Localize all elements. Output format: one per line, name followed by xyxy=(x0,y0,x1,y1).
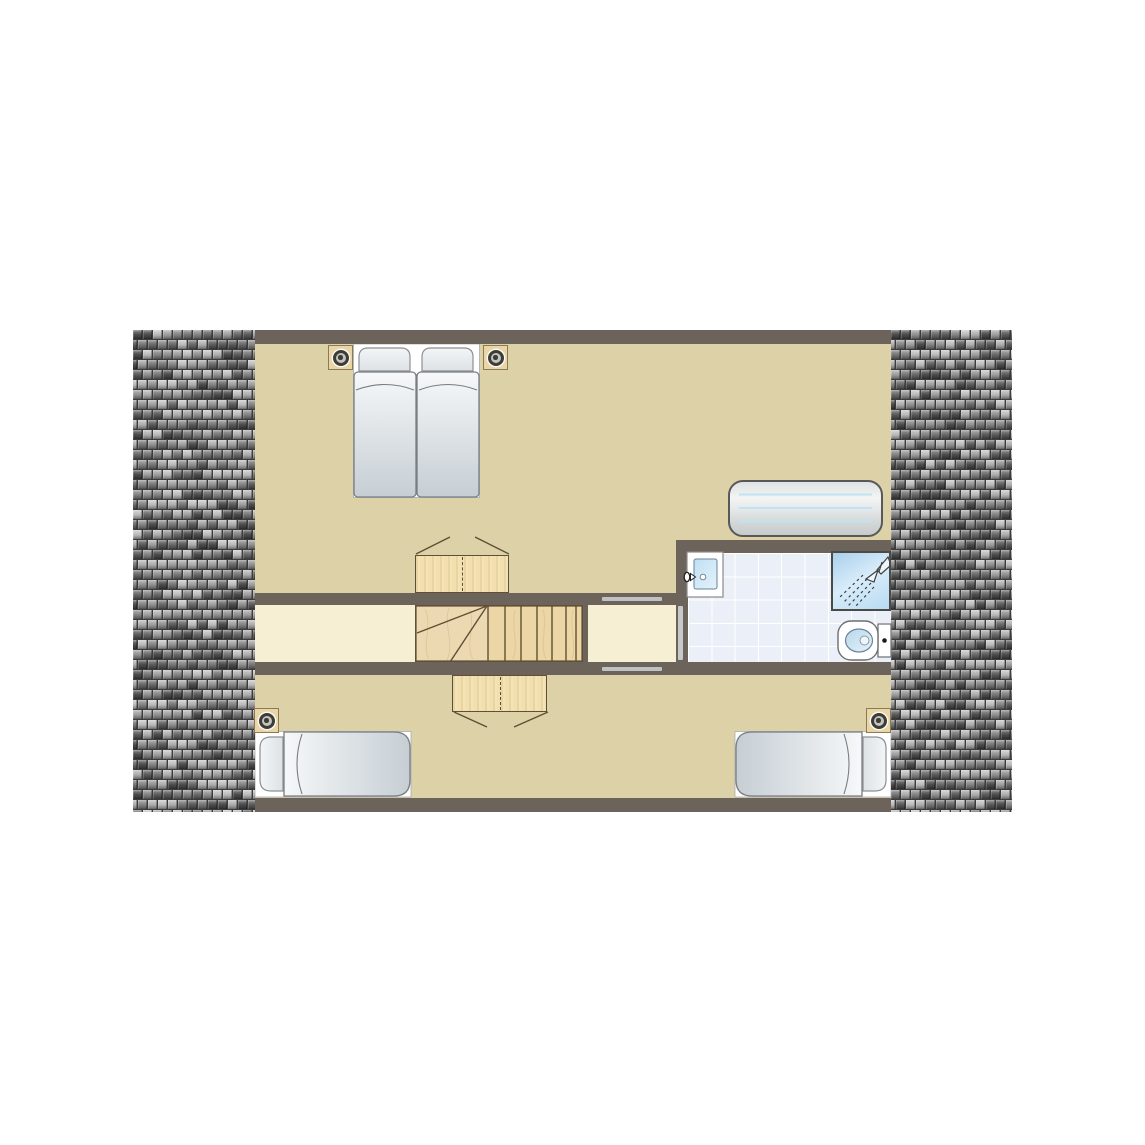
shingle-row xyxy=(133,580,255,589)
roof-shingles-right xyxy=(891,330,1012,812)
shingle-row xyxy=(133,430,255,439)
shingle-row xyxy=(891,740,1012,749)
shingle-row xyxy=(891,460,1012,469)
shingle-row xyxy=(133,810,255,812)
shingle-row xyxy=(133,720,255,729)
shingle-row xyxy=(891,570,1012,579)
bed-double-twin xyxy=(353,344,480,498)
radiator xyxy=(728,480,883,537)
shingle-row xyxy=(133,480,255,489)
wardrobe-top xyxy=(415,555,509,593)
shingle-row xyxy=(133,710,255,719)
shingle-row xyxy=(891,410,1012,419)
shingle-row xyxy=(891,660,1012,669)
shingle-row xyxy=(891,710,1012,719)
shingle-row xyxy=(891,670,1012,679)
shingle-row xyxy=(891,790,1012,799)
shingle-row xyxy=(133,470,255,479)
nightstand-top-right xyxy=(483,345,508,370)
shingle-row xyxy=(133,610,255,619)
shingle-row xyxy=(133,750,255,759)
shingle-row xyxy=(891,690,1012,699)
shingle-row xyxy=(891,500,1012,509)
shingle-row xyxy=(133,440,255,449)
toilet xyxy=(836,618,893,663)
shingle-row xyxy=(133,660,255,669)
nightstand-top-left xyxy=(328,345,353,370)
bathroom-door xyxy=(678,606,683,660)
shingle-row xyxy=(891,510,1012,519)
shingle-row xyxy=(891,590,1012,599)
hallway-wall-lower xyxy=(255,662,891,675)
shingle-row xyxy=(133,420,255,429)
shingle-row xyxy=(133,600,255,609)
lamp-icon xyxy=(488,350,504,366)
shingle-row xyxy=(891,730,1012,739)
nightstand-bottom-left xyxy=(254,708,279,733)
shingle-row xyxy=(133,630,255,639)
lamp-icon xyxy=(259,713,275,729)
shingle-row xyxy=(891,520,1012,529)
shingle-row xyxy=(133,400,255,409)
shingle-row xyxy=(891,530,1012,539)
shingle-row xyxy=(891,400,1012,409)
single-bed-right xyxy=(734,730,891,798)
shingle-row xyxy=(133,780,255,789)
doorway-threshold-top-bedroom xyxy=(602,597,662,601)
hallway-landing-floor xyxy=(588,605,676,662)
shingle-row xyxy=(133,530,255,539)
shingle-row xyxy=(133,500,255,509)
mattress xyxy=(284,732,410,796)
shingle-row xyxy=(891,360,1012,369)
wardrobe-top-open-doors xyxy=(412,534,512,555)
shingle-row xyxy=(133,450,255,459)
shingle-row xyxy=(133,690,255,699)
flush-button-icon xyxy=(882,638,887,643)
shingle-row xyxy=(891,700,1012,709)
shingle-row xyxy=(133,410,255,419)
shingle-row xyxy=(133,760,255,769)
shingle-row xyxy=(133,620,255,629)
shingle-row xyxy=(133,330,255,339)
shingle-row xyxy=(133,560,255,569)
pillow xyxy=(863,737,886,791)
shower xyxy=(831,551,891,611)
shingle-row xyxy=(891,770,1012,779)
shingle-row xyxy=(891,440,1012,449)
lamp-icon xyxy=(871,713,887,729)
shingle-row xyxy=(891,720,1012,729)
shingle-row xyxy=(133,370,255,379)
shingle-row xyxy=(891,630,1012,639)
shingle-row xyxy=(891,650,1012,659)
wardrobe-bottom-open-doors xyxy=(450,711,550,730)
shingle-row xyxy=(133,740,255,749)
exterior-wall-bottom xyxy=(255,798,891,812)
staircase xyxy=(415,605,583,662)
shingle-row xyxy=(133,670,255,679)
shingle-row xyxy=(891,780,1012,789)
shingle-row xyxy=(891,540,1012,549)
floorplan-canvas xyxy=(0,0,1145,1145)
mattress-left xyxy=(354,372,416,497)
pillow xyxy=(260,737,283,791)
nightstand-bottom-right xyxy=(866,708,891,733)
shingle-row xyxy=(891,800,1012,809)
shingle-row xyxy=(133,460,255,469)
shingle-row xyxy=(133,800,255,809)
shingle-row xyxy=(133,590,255,599)
lamp-icon xyxy=(333,350,349,366)
shingle-row xyxy=(133,510,255,519)
shingle-row xyxy=(891,350,1012,359)
shingle-row xyxy=(891,420,1012,429)
shingle-row xyxy=(891,580,1012,589)
roof-shingles-left xyxy=(133,330,255,812)
shingle-row xyxy=(133,340,255,349)
shingle-row xyxy=(891,600,1012,609)
shingle-row xyxy=(133,790,255,799)
shingle-row xyxy=(891,390,1012,399)
single-bed-left xyxy=(255,730,412,798)
shingle-row xyxy=(891,760,1012,769)
shingle-row xyxy=(133,640,255,649)
shingle-row xyxy=(133,540,255,549)
shingle-row xyxy=(891,640,1012,649)
shingle-row xyxy=(133,490,255,499)
shingle-row xyxy=(891,450,1012,459)
mattress-right xyxy=(417,372,479,497)
shingle-row xyxy=(891,560,1012,569)
shingle-row xyxy=(133,570,255,579)
shingle-row xyxy=(891,550,1012,559)
shingle-row xyxy=(133,680,255,689)
hallway-floor xyxy=(255,605,415,662)
tap-icon xyxy=(684,572,690,581)
shingle-row xyxy=(133,350,255,359)
shingle-row xyxy=(891,370,1012,379)
shingle-row xyxy=(891,330,1012,339)
shingle-row xyxy=(891,610,1012,619)
shingle-row xyxy=(891,480,1012,489)
doorway-threshold-bottom-bedroom xyxy=(602,667,662,671)
pillow xyxy=(422,348,473,371)
shingle-row xyxy=(891,810,1012,812)
shingle-row xyxy=(891,340,1012,349)
wardrobe-bottom xyxy=(452,675,547,712)
shingle-row xyxy=(133,390,255,399)
mattress xyxy=(736,732,862,796)
shower-head-icon xyxy=(833,553,889,609)
shingle-row xyxy=(891,470,1012,479)
shingle-row xyxy=(133,360,255,369)
shingle-row xyxy=(891,620,1012,629)
shingle-row xyxy=(133,380,255,389)
exterior-wall-top xyxy=(255,330,891,344)
shingle-row xyxy=(891,750,1012,759)
shingle-row xyxy=(891,380,1012,389)
shingle-row xyxy=(133,730,255,739)
shingle-row xyxy=(133,650,255,659)
shingle-row xyxy=(891,680,1012,689)
shingle-row xyxy=(891,430,1012,439)
shingle-row xyxy=(133,700,255,709)
shingle-row xyxy=(133,520,255,529)
shingle-row xyxy=(133,550,255,559)
shingle-row xyxy=(891,490,1012,499)
washbasin xyxy=(681,551,725,599)
shingle-row xyxy=(133,770,255,779)
pillow xyxy=(359,348,410,371)
